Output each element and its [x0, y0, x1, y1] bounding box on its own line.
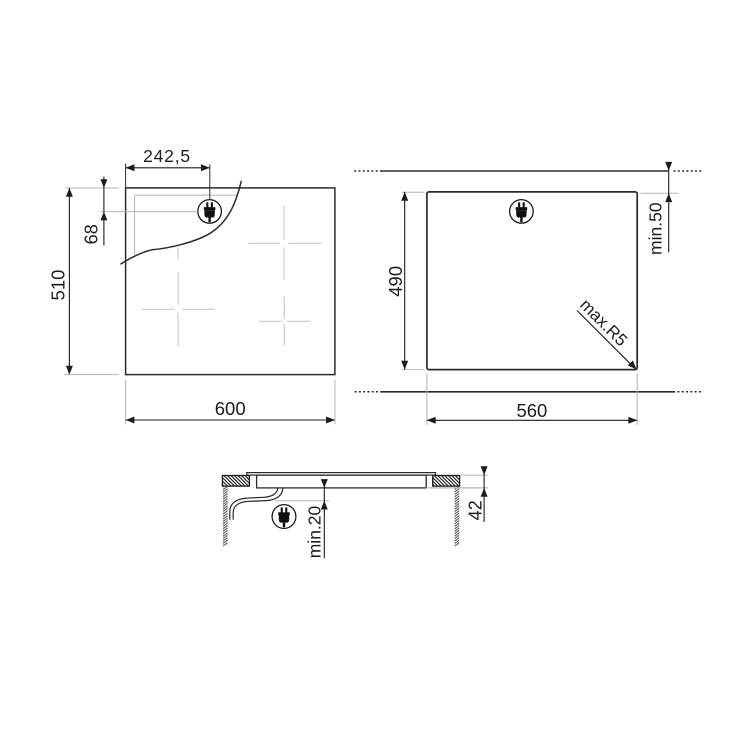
- svg-text:min.50: min.50: [646, 202, 666, 255]
- svg-text:min.20: min.20: [304, 505, 324, 558]
- svg-text:68: 68: [81, 224, 101, 244]
- svg-text:42: 42: [466, 500, 486, 520]
- svg-text:490: 490: [385, 266, 406, 297]
- svg-text:560: 560: [516, 400, 547, 421]
- svg-text:max.R5: max.R5: [576, 295, 631, 350]
- svg-text:510: 510: [47, 270, 68, 301]
- svg-text:242,5: 242,5: [143, 146, 191, 166]
- svg-text:600: 600: [215, 398, 246, 419]
